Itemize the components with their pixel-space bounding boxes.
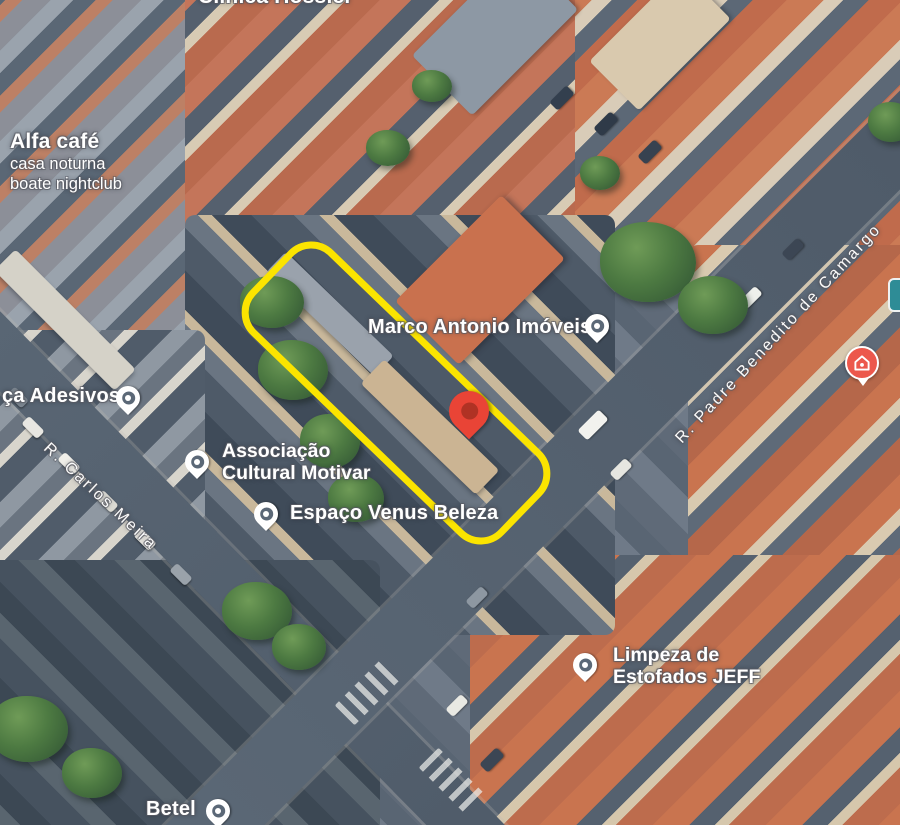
poi-sub-alfa-cafe-2: boate nightclub	[10, 174, 122, 194]
poi-label-marco-antonio[interactable]: Marco Antonio Imóveis	[368, 316, 592, 339]
poi-name-associacao-2: Cultural Motivar	[222, 462, 370, 484]
tree	[272, 624, 326, 670]
tree	[678, 276, 748, 334]
poi-limpeza[interactable]: Limpeza de Estofados JEFF	[613, 644, 760, 688]
poi-label-top-partial[interactable]: Clínica Hossler	[198, 0, 353, 9]
satellite-map[interactable]: R. Carlos Meira R. Padre Benedito de Cam…	[0, 0, 900, 825]
poi-name-associacao-1: Associação	[222, 440, 370, 462]
marker-inner-dot	[457, 399, 481, 423]
poi-label-espaco-venus[interactable]: Espaço Venus Beleza	[290, 502, 498, 525]
tree	[366, 130, 410, 166]
tree	[580, 156, 620, 190]
poi-associacao[interactable]: Associação Cultural Motivar	[222, 440, 370, 484]
poi-label-adesivos[interactable]: ça Adesivos	[2, 385, 120, 408]
poi-alfa-cafe[interactable]: Alfa café casa noturna boate nightclub	[10, 130, 122, 194]
poi-label-betel[interactable]: Betel	[146, 798, 196, 821]
tree	[412, 70, 452, 102]
poi-sub-alfa-cafe-1: casa noturna	[10, 154, 122, 174]
tree	[62, 748, 122, 798]
poi-name-alfa-cafe: Alfa café	[10, 130, 122, 154]
poi-name-limpeza-2: Estofados JEFF	[613, 666, 760, 688]
house-poi-icon[interactable]	[845, 346, 879, 380]
house-icon	[854, 355, 871, 372]
poi-name-limpeza-1: Limpeza de	[613, 644, 760, 666]
teal-poi-partial-icon[interactable]	[888, 278, 900, 312]
